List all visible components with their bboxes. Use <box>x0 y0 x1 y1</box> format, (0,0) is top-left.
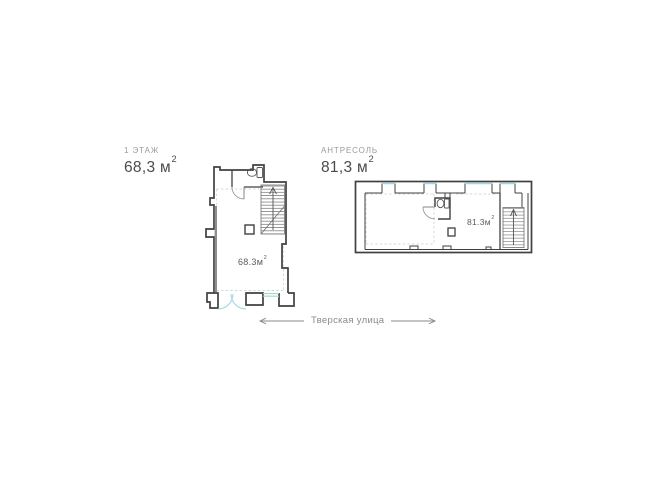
street-direction: Тверская улица <box>258 315 444 326</box>
floor1-area-value: 68,3 м <box>124 159 171 176</box>
stairs-icon <box>261 185 285 234</box>
stairs-icon <box>503 208 524 248</box>
window-green <box>263 294 279 297</box>
mezzanine-plan-drawing <box>352 178 538 258</box>
street-arrow-left-icon <box>258 317 304 325</box>
street-arrow-right-icon <box>391 317 437 325</box>
bottom-pilasters <box>410 246 491 250</box>
door-swing-icon <box>423 207 435 219</box>
wc-room <box>423 193 450 219</box>
street-label: Тверская улица <box>311 315 384 326</box>
mezzanine-area-value: 81,3 м <box>321 159 368 176</box>
entry-door-arcs-icon <box>218 294 246 309</box>
mezzanine-area-sup: 2 <box>368 154 373 164</box>
floor1-area: 68,3 м2 <box>124 158 177 177</box>
floor-plan-page: 1 ЭТАЖ 68,3 м2 АНТРЕСОЛЬ 81,3 м2 <box>0 0 653 489</box>
floor1-title: 1 ЭТАЖ <box>124 146 177 155</box>
mezzanine-room-area-label: 81.3м2 <box>467 217 495 227</box>
floor1-plan-drawing <box>196 158 308 315</box>
floor1-title-block: 1 ЭТАЖ 68,3 м2 <box>124 146 177 177</box>
door-swing-icon <box>232 187 244 199</box>
floor1-room-area-label: 68.3м2 <box>238 257 267 267</box>
floor1-area-sup: 2 <box>171 154 176 164</box>
column <box>448 228 455 236</box>
toilet-icon <box>437 199 449 208</box>
toilet-icon <box>247 168 262 178</box>
mezzanine-title-block: АНТРЕСОЛЬ 81,3 м2 <box>321 146 378 177</box>
mezzanine-area: 81,3 м2 <box>321 158 378 177</box>
column <box>245 225 254 234</box>
